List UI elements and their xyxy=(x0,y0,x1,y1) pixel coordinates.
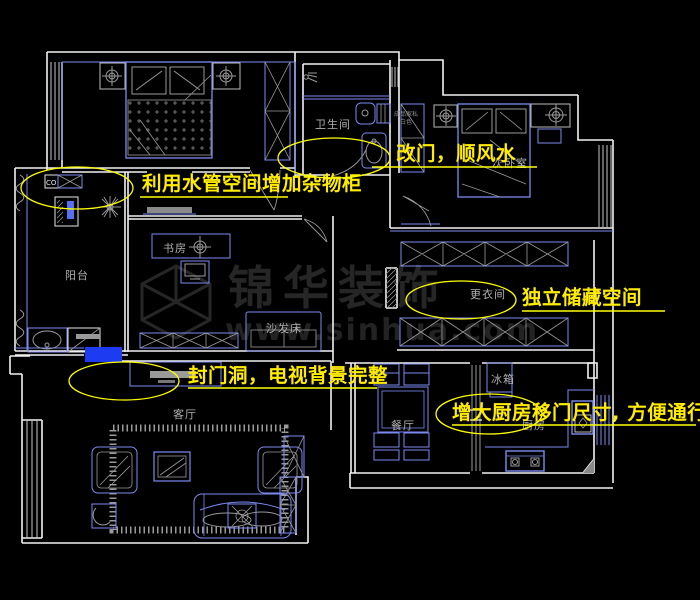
annotation-text: 改门，顺风水 xyxy=(396,142,516,165)
corridor-cabinet xyxy=(147,207,192,213)
dressing-room-label: 更衣间 xyxy=(470,287,506,301)
counter-bar xyxy=(76,334,100,339)
bathroom-label: 卫生间 xyxy=(315,117,351,131)
fridge-label: 冰箱 xyxy=(491,372,515,386)
heater-marks: CO xyxy=(46,179,57,187)
balcony-label: 阳台 xyxy=(65,268,89,282)
annotation-text: 增大厨房移门尺寸, 方便通行 xyxy=(452,401,700,424)
cad-floorplan-canvas[interactable]: 锦华装饰 www.sinhua.com xyxy=(0,0,700,600)
watermark-brand: 锦华装饰 xyxy=(228,261,448,315)
living-room-label: 客厅 xyxy=(173,407,197,421)
sealed-door-infill xyxy=(85,347,122,362)
bed-quilt xyxy=(128,100,211,155)
annotation-text: 独立储藏空间 xyxy=(522,286,642,309)
annotation-text: 利用水管空间增加杂物柜 xyxy=(142,172,362,195)
closet-note-line1: 成品家私 xyxy=(394,110,418,118)
closet-note-line2: 白色 xyxy=(400,118,412,126)
annotation-text: 封门洞，电视背景完整 xyxy=(188,364,388,387)
study-label: 书房 xyxy=(163,242,187,255)
wall-pier-hatch xyxy=(386,268,397,308)
floorplan-drawing: 锦华装饰 www.sinhua.com xyxy=(0,0,700,600)
dining-room-label: 餐厅 xyxy=(391,418,415,432)
sofa-bed-label: 沙发床 xyxy=(266,321,302,335)
